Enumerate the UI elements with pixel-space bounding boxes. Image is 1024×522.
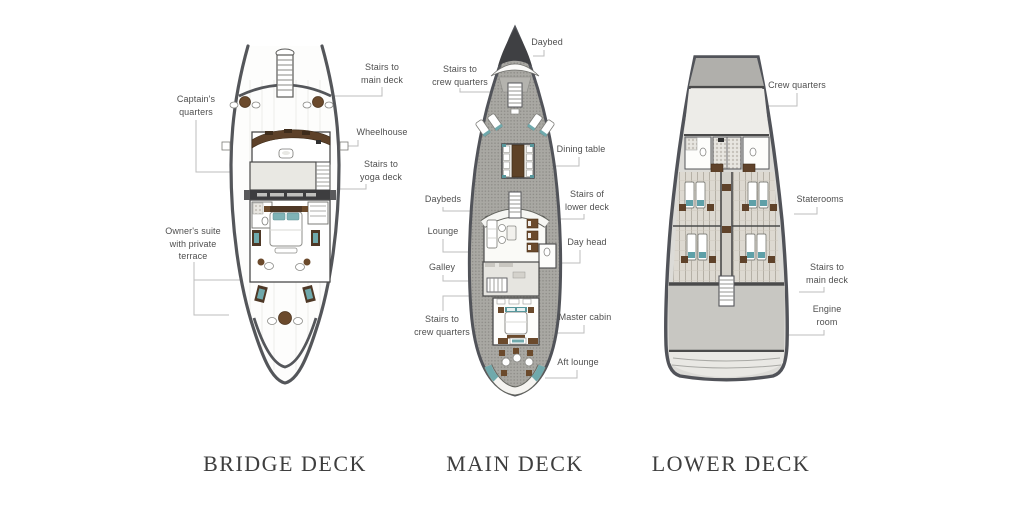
bridge-owners-suite bbox=[250, 200, 330, 282]
lower-deck-title: LOWER DECK bbox=[631, 451, 831, 477]
lower-bathrooms bbox=[685, 137, 769, 173]
label-lounge: Lounge bbox=[408, 225, 478, 238]
label-aft-lounge: Aft lounge bbox=[543, 356, 613, 369]
bridge-captains-quarters bbox=[250, 162, 330, 190]
label-galley: Galley bbox=[407, 261, 477, 274]
lower-staterooms bbox=[673, 172, 780, 282]
bridge-bow-stairs bbox=[276, 49, 294, 97]
label-stairs-of-lower-deck: Stairs of lower deck bbox=[552, 188, 622, 213]
lower-engine-room bbox=[668, 276, 785, 351]
main-dining-table bbox=[502, 144, 534, 178]
main-galley bbox=[483, 262, 539, 296]
label-daybeds: Daybeds bbox=[408, 193, 478, 206]
bridge-bulkhead-band bbox=[244, 190, 336, 200]
label-owners-suite: Owner's suite with private terrace bbox=[153, 225, 233, 263]
label-stairs-to-yoga-deck: Stairs to yoga deck bbox=[346, 158, 416, 183]
label-stairs-to-crew-quarters-bottom: Stairs to crew quarters bbox=[407, 313, 477, 338]
label-wheelhouse: Wheelhouse bbox=[342, 126, 422, 139]
lower-crew-quarters bbox=[684, 89, 769, 135]
label-stairs-to-main-deck: Stairs to main deck bbox=[347, 61, 417, 86]
label-dining-table: Dining table bbox=[546, 143, 616, 156]
label-stairs-to-crew-quarters-top: Stairs to crew quarters bbox=[425, 63, 495, 88]
lower-deck-plan bbox=[655, 50, 805, 385]
deck-plans-canvas: Stairs to main deck Captain's quarters W… bbox=[0, 0, 1024, 522]
label-master-cabin: Master cabin bbox=[550, 311, 620, 324]
label-crew-quarters: Crew quarters bbox=[757, 79, 837, 92]
main-master-cabin bbox=[493, 298, 539, 345]
main-deck-title: MAIN DECK bbox=[415, 451, 615, 477]
label-stairs-to-main-deck-lower: Stairs to main deck bbox=[792, 261, 862, 286]
label-staterooms: Staterooms bbox=[780, 193, 860, 206]
bridge-deck-plan bbox=[210, 40, 360, 400]
label-day-head: Day head bbox=[552, 236, 622, 249]
bridge-wheelhouse bbox=[252, 129, 330, 164]
bridge-deck-title: BRIDGE DECK bbox=[185, 451, 385, 477]
label-captains-quarters: Captain's quarters bbox=[161, 93, 231, 118]
label-engine-room: Engine room bbox=[792, 303, 862, 328]
label-daybed: Daybed bbox=[517, 36, 577, 49]
